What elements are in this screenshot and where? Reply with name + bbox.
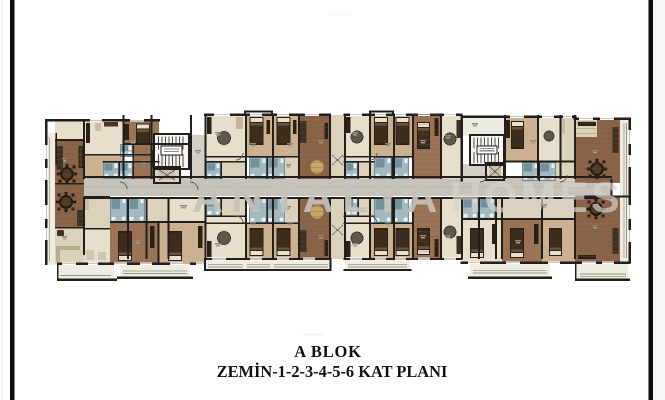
svg-text:HOMES: HOMES: [450, 174, 623, 222]
svg-text:ZEMİN-1-2-3-4-5-6 KAT PLANI: ZEMİN-1-2-3-4-5-6 KAT PLANI: [217, 362, 448, 381]
svg-text:A BLOK: A BLOK: [294, 342, 362, 361]
svg-text:ANTALYA: ANTALYA: [192, 174, 446, 222]
